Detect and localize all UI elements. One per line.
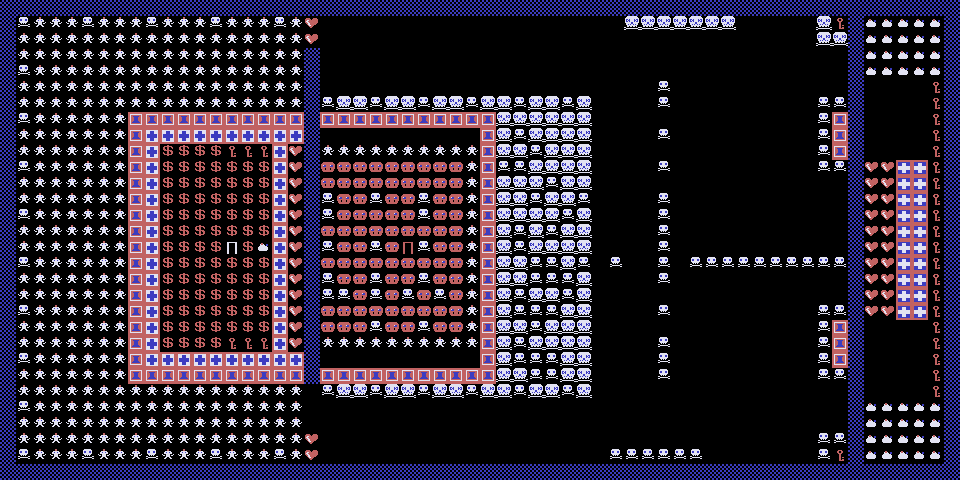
tile-capped-monster[interactable] <box>114 49 126 59</box>
tile-capped-monster[interactable] <box>66 241 78 251</box>
tile-capped-monster[interactable] <box>34 81 46 91</box>
tile-red-face-monster[interactable] <box>433 210 447 220</box>
tile-large-skull[interactable] <box>544 384 560 398</box>
tile-capped-monster[interactable] <box>466 289 478 299</box>
tile-capped-monster[interactable] <box>50 177 62 187</box>
tile-red-face-monster[interactable] <box>369 178 383 188</box>
tile-treasure-dollar[interactable] <box>211 289 221 300</box>
tile-small-skull[interactable] <box>658 241 670 251</box>
tile-capped-monster[interactable] <box>98 401 110 411</box>
tile-money-bag[interactable] <box>914 403 924 411</box>
tile-capped-monster[interactable] <box>258 49 270 59</box>
tile-small-skull[interactable] <box>834 257 846 267</box>
tile-small-skull[interactable] <box>818 129 830 139</box>
tile-heart[interactable] <box>881 210 894 220</box>
tile-large-skull[interactable] <box>560 112 576 126</box>
tile-treasure-dollar[interactable] <box>163 209 173 220</box>
tile-capped-monster[interactable] <box>114 33 126 43</box>
tile-capped-monster[interactable] <box>34 145 46 155</box>
tile-large-skull[interactable] <box>576 160 592 174</box>
tile-large-skull[interactable] <box>528 384 544 398</box>
tile-capped-monster[interactable] <box>98 289 110 299</box>
tile-large-skull[interactable] <box>528 176 544 190</box>
tile-capped-monster[interactable] <box>210 97 222 107</box>
tile-small-skull[interactable] <box>322 385 334 395</box>
tile-treasure-dollar[interactable] <box>163 177 173 188</box>
tile-red-face-monster[interactable] <box>353 194 367 204</box>
tile-red-face-monster[interactable] <box>321 162 335 172</box>
tile-capped-monster[interactable] <box>274 401 286 411</box>
tile-key[interactable] <box>933 242 940 253</box>
tile-small-skull[interactable] <box>674 449 686 459</box>
tile-heart[interactable] <box>881 258 894 268</box>
tile-red-face-monster[interactable] <box>401 322 415 332</box>
tile-large-skull[interactable] <box>496 128 512 142</box>
tile-capped-monster[interactable] <box>34 337 46 347</box>
tile-capped-monster[interactable] <box>162 49 174 59</box>
tile-money-bag[interactable] <box>882 435 892 443</box>
tile-large-skull[interactable] <box>496 320 512 334</box>
tile-capped-monster[interactable] <box>146 33 158 43</box>
tile-capped-monster[interactable] <box>354 145 366 155</box>
tile-capped-monster[interactable] <box>194 385 206 395</box>
tile-red-face-monster[interactable] <box>321 306 335 316</box>
tile-capped-monster[interactable] <box>434 337 446 347</box>
tile-treasure-dollar[interactable] <box>243 257 253 268</box>
tile-large-skull[interactable] <box>560 144 576 158</box>
tile-capped-monster[interactable] <box>98 305 110 315</box>
tile-capped-monster[interactable] <box>50 353 62 363</box>
tile-capped-monster[interactable] <box>82 161 94 171</box>
tile-heart[interactable] <box>881 290 894 300</box>
tile-capped-monster[interactable] <box>82 145 94 155</box>
tile-capped-monster[interactable] <box>290 433 302 443</box>
tile-capped-monster[interactable] <box>66 337 78 347</box>
tile-small-skull[interactable] <box>18 209 30 219</box>
tile-large-skull[interactable] <box>560 176 576 190</box>
tile-small-skull[interactable] <box>818 97 830 107</box>
tile-large-skull[interactable] <box>496 336 512 350</box>
tile-red-face-monster[interactable] <box>417 226 431 236</box>
tile-capped-monster[interactable] <box>114 257 126 267</box>
tile-capped-monster[interactable] <box>66 401 78 411</box>
tile-treasure-dollar[interactable] <box>163 337 173 348</box>
tile-small-skull[interactable] <box>370 193 382 203</box>
tile-large-skull[interactable] <box>432 384 448 398</box>
tile-capped-monster[interactable] <box>66 305 78 315</box>
tile-large-skull[interactable] <box>544 288 560 302</box>
tile-small-skull[interactable] <box>466 385 478 395</box>
tile-heart[interactable] <box>289 242 302 252</box>
tile-capped-monster[interactable] <box>162 17 174 27</box>
tile-treasure-dollar[interactable] <box>211 177 221 188</box>
tile-treasure-dollar[interactable] <box>195 257 205 268</box>
tile-treasure-dollar[interactable] <box>179 225 189 236</box>
tile-red-face-monster[interactable] <box>385 162 399 172</box>
tile-small-skull[interactable] <box>418 273 430 283</box>
tile-treasure-dollar[interactable] <box>259 161 269 172</box>
tile-small-skull[interactable] <box>322 97 334 107</box>
tile-treasure-dollar[interactable] <box>163 225 173 236</box>
tile-capped-monster[interactable] <box>210 385 222 395</box>
tile-capped-monster[interactable] <box>18 433 30 443</box>
tile-capped-monster[interactable] <box>242 33 254 43</box>
tile-capped-monster[interactable] <box>18 145 30 155</box>
tile-capped-monster[interactable] <box>146 433 158 443</box>
tile-capped-monster[interactable] <box>50 113 62 123</box>
tile-red-face-monster[interactable] <box>353 178 367 188</box>
tile-red-face-monster[interactable] <box>401 258 415 268</box>
tile-small-skull[interactable] <box>418 209 430 219</box>
tile-capped-monster[interactable] <box>50 161 62 171</box>
tile-small-skull[interactable] <box>818 113 830 123</box>
tile-heart[interactable] <box>289 194 302 204</box>
tile-treasure-dollar[interactable] <box>243 193 253 204</box>
tile-small-skull[interactable] <box>514 353 526 363</box>
tile-capped-monster[interactable] <box>66 289 78 299</box>
tile-capped-monster[interactable] <box>466 225 478 235</box>
tile-large-skull[interactable] <box>512 320 528 334</box>
tile-capped-monster[interactable] <box>130 65 142 75</box>
tile-capped-monster[interactable] <box>82 353 94 363</box>
tile-capped-monster[interactable] <box>82 369 94 379</box>
tile-capped-monster[interactable] <box>338 145 350 155</box>
tile-heart[interactable] <box>289 210 302 220</box>
tile-treasure-dollar[interactable] <box>259 193 269 204</box>
tile-red-face-monster[interactable] <box>449 274 463 284</box>
tile-red-face-monster[interactable] <box>337 274 351 284</box>
tile-red-face-monster[interactable] <box>417 178 431 188</box>
tile-small-skull[interactable] <box>514 161 526 171</box>
tile-capped-monster[interactable] <box>434 145 446 155</box>
tile-capped-monster[interactable] <box>82 433 94 443</box>
tile-capped-monster[interactable] <box>274 49 286 59</box>
tile-treasure-dollar[interactable] <box>195 241 205 252</box>
tile-small-skull[interactable] <box>418 193 430 203</box>
tile-red-face-monster[interactable] <box>369 258 383 268</box>
tile-large-skull[interactable] <box>496 304 512 318</box>
tile-large-skull[interactable] <box>496 352 512 366</box>
tile-small-skull[interactable] <box>530 257 542 267</box>
tile-treasure-dollar[interactable] <box>211 209 221 220</box>
tile-red-face-monster[interactable] <box>369 162 383 172</box>
tile-red-face-monster[interactable] <box>385 242 399 252</box>
tile-treasure-dollar[interactable] <box>179 177 189 188</box>
tile-red-face-monster[interactable] <box>449 194 463 204</box>
tile-capped-monster[interactable] <box>370 145 382 155</box>
tile-heart[interactable] <box>305 450 318 460</box>
tile-treasure-dollar[interactable] <box>259 289 269 300</box>
tile-capped-monster[interactable] <box>178 17 190 27</box>
tile-capped-monster[interactable] <box>242 65 254 75</box>
tile-small-skull[interactable] <box>18 353 30 363</box>
tile-key[interactable] <box>837 450 844 461</box>
tile-capped-monster[interactable] <box>226 33 238 43</box>
tile-heart[interactable] <box>289 274 302 284</box>
tile-capped-monster[interactable] <box>34 449 46 459</box>
tile-capped-monster[interactable] <box>66 97 78 107</box>
tile-large-skull[interactable] <box>544 144 560 158</box>
tile-key[interactable] <box>933 274 940 285</box>
tile-key[interactable] <box>245 146 252 157</box>
tile-money-bag[interactable] <box>930 419 940 427</box>
tile-red-face-monster[interactable] <box>369 226 383 236</box>
tile-capped-monster[interactable] <box>178 401 190 411</box>
tile-large-skull[interactable] <box>528 112 544 126</box>
tile-capped-monster[interactable] <box>66 353 78 363</box>
tile-capped-monster[interactable] <box>66 113 78 123</box>
tile-capped-monster[interactable] <box>226 65 238 75</box>
tile-capped-monster[interactable] <box>34 113 46 123</box>
tile-capped-monster[interactable] <box>162 385 174 395</box>
tile-capped-monster[interactable] <box>98 65 110 75</box>
tile-money-bag[interactable] <box>866 67 876 75</box>
tile-money-bag[interactable] <box>258 243 268 251</box>
tile-large-skull[interactable] <box>560 304 576 318</box>
tile-key[interactable] <box>933 114 940 125</box>
tile-small-skull[interactable] <box>818 305 830 315</box>
tile-heart[interactable] <box>865 210 878 220</box>
tile-treasure-dollar[interactable] <box>227 305 237 316</box>
tile-treasure-dollar[interactable] <box>211 161 221 172</box>
tile-small-skull[interactable] <box>514 305 526 315</box>
tile-treasure-dollar[interactable] <box>163 289 173 300</box>
tile-large-skull[interactable] <box>528 336 544 350</box>
tile-capped-monster[interactable] <box>210 433 222 443</box>
tile-small-skull[interactable] <box>562 385 574 395</box>
tile-capped-monster[interactable] <box>130 97 142 107</box>
tile-capped-monster[interactable] <box>18 49 30 59</box>
tile-red-face-monster[interactable] <box>433 306 447 316</box>
tile-small-skull[interactable] <box>546 225 558 235</box>
tile-red-face-monster[interactable] <box>353 242 367 252</box>
tile-large-skull[interactable] <box>576 240 592 254</box>
tile-large-skull[interactable] <box>816 16 832 30</box>
tile-red-face-monster[interactable] <box>449 258 463 268</box>
tile-small-skull[interactable] <box>754 257 766 267</box>
tile-heart[interactable] <box>865 194 878 204</box>
tile-heart[interactable] <box>881 178 894 188</box>
tile-treasure-dollar[interactable] <box>179 161 189 172</box>
tile-large-skull[interactable] <box>448 384 464 398</box>
tile-capped-monster[interactable] <box>130 449 142 459</box>
tile-capped-monster[interactable] <box>66 257 78 267</box>
tile-capped-monster[interactable] <box>18 81 30 91</box>
tile-capped-monster[interactable] <box>114 129 126 139</box>
tile-capped-monster[interactable] <box>82 129 94 139</box>
tile-capped-monster[interactable] <box>98 385 110 395</box>
tile-capped-monster[interactable] <box>162 81 174 91</box>
tile-money-bag[interactable] <box>866 451 876 459</box>
tile-money-bag[interactable] <box>866 419 876 427</box>
tile-small-skull[interactable] <box>610 257 622 267</box>
tile-large-skull[interactable] <box>496 144 512 158</box>
tile-heart[interactable] <box>289 178 302 188</box>
tile-capped-monster[interactable] <box>18 337 30 347</box>
tile-treasure-dollar[interactable] <box>259 321 269 332</box>
tile-heart[interactable] <box>305 18 318 28</box>
tile-small-skull[interactable] <box>402 289 414 299</box>
tile-red-face-monster[interactable] <box>449 162 463 172</box>
tile-small-skull[interactable] <box>370 273 382 283</box>
tile-capped-monster[interactable] <box>242 449 254 459</box>
tile-key[interactable] <box>933 306 940 317</box>
tile-capped-monster[interactable] <box>98 209 110 219</box>
tile-capped-monster[interactable] <box>290 65 302 75</box>
tile-capped-monster[interactable] <box>18 33 30 43</box>
tile-large-skull[interactable] <box>528 160 544 174</box>
tile-capped-monster[interactable] <box>210 401 222 411</box>
tile-key[interactable] <box>261 146 268 157</box>
tile-capped-monster[interactable] <box>226 417 238 427</box>
tile-small-skull[interactable] <box>530 305 542 315</box>
tile-money-bag[interactable] <box>914 67 924 75</box>
tile-capped-monster[interactable] <box>258 81 270 91</box>
tile-capped-monster[interactable] <box>66 225 78 235</box>
tile-red-face-monster[interactable] <box>433 162 447 172</box>
tile-heart[interactable] <box>865 306 878 316</box>
tile-small-skull[interactable] <box>834 433 846 443</box>
tile-capped-monster[interactable] <box>98 433 110 443</box>
tile-capped-monster[interactable] <box>466 145 478 155</box>
tile-capped-monster[interactable] <box>50 17 62 27</box>
tile-large-skull[interactable] <box>544 160 560 174</box>
tile-key[interactable] <box>933 386 940 397</box>
tile-treasure-dollar[interactable] <box>195 273 205 284</box>
tile-small-skull[interactable] <box>418 385 430 395</box>
tile-capped-monster[interactable] <box>466 337 478 347</box>
tile-large-skull[interactable] <box>496 224 512 238</box>
tile-capped-monster[interactable] <box>338 337 350 347</box>
tile-red-face-monster[interactable] <box>385 290 399 300</box>
tile-capped-monster[interactable] <box>34 209 46 219</box>
tile-capped-monster[interactable] <box>178 433 190 443</box>
tile-capped-monster[interactable] <box>82 97 94 107</box>
tile-small-skull[interactable] <box>82 17 94 27</box>
tile-capped-monster[interactable] <box>178 65 190 75</box>
tile-large-skull[interactable] <box>496 384 512 398</box>
tile-large-skull[interactable] <box>528 240 544 254</box>
tile-key[interactable] <box>933 338 940 349</box>
tile-heart[interactable] <box>865 258 878 268</box>
tile-capped-monster[interactable] <box>98 193 110 203</box>
tile-large-skull[interactable] <box>576 176 592 190</box>
tile-capped-monster[interactable] <box>258 17 270 27</box>
tile-capped-monster[interactable] <box>114 17 126 27</box>
tile-small-skull[interactable] <box>18 113 30 123</box>
tile-capped-monster[interactable] <box>98 321 110 331</box>
tile-capped-monster[interactable] <box>402 145 414 155</box>
tile-heart[interactable] <box>881 194 894 204</box>
tile-capped-monster[interactable] <box>18 97 30 107</box>
tile-money-bag[interactable] <box>866 403 876 411</box>
tile-small-skull[interactable] <box>210 17 222 27</box>
tile-capped-monster[interactable] <box>50 33 62 43</box>
tile-treasure-dollar[interactable] <box>179 321 189 332</box>
tile-small-skull[interactable] <box>370 241 382 251</box>
tile-capped-monster[interactable] <box>114 193 126 203</box>
tile-capped-monster[interactable] <box>18 385 30 395</box>
tile-small-skull[interactable] <box>562 209 574 219</box>
tile-red-face-monster[interactable] <box>337 226 351 236</box>
tile-money-bag[interactable] <box>882 403 892 411</box>
tile-small-skull[interactable] <box>658 81 670 91</box>
tile-heart[interactable] <box>865 178 878 188</box>
tile-small-skull[interactable] <box>818 433 830 443</box>
tile-capped-monster[interactable] <box>98 417 110 427</box>
tile-large-skull[interactable] <box>448 96 464 110</box>
tile-red-face-monster[interactable] <box>417 258 431 268</box>
tile-red-face-monster[interactable] <box>321 226 335 236</box>
tile-large-skull[interactable] <box>336 384 352 398</box>
tile-capped-monster[interactable] <box>258 417 270 427</box>
tile-capped-monster[interactable] <box>98 97 110 107</box>
tile-large-skull[interactable] <box>544 96 560 110</box>
tile-large-skull[interactable] <box>496 272 512 286</box>
tile-capped-monster[interactable] <box>146 81 158 91</box>
tile-large-skull[interactable] <box>832 32 848 46</box>
tile-capped-monster[interactable] <box>290 385 302 395</box>
tile-heart[interactable] <box>289 290 302 300</box>
tile-money-bag[interactable] <box>914 451 924 459</box>
tile-key[interactable] <box>229 338 236 349</box>
tile-large-skull[interactable] <box>496 288 512 302</box>
tile-money-bag[interactable] <box>898 35 908 43</box>
tile-capped-monster[interactable] <box>18 241 30 251</box>
tile-capped-monster[interactable] <box>210 65 222 75</box>
tile-money-bag[interactable] <box>866 35 876 43</box>
tile-large-skull[interactable] <box>576 272 592 286</box>
tile-treasure-dollar[interactable] <box>179 241 189 252</box>
tile-capped-monster[interactable] <box>114 417 126 427</box>
tile-capped-monster[interactable] <box>194 401 206 411</box>
tile-treasure-dollar[interactable] <box>163 145 173 156</box>
tile-red-face-monster[interactable] <box>385 274 399 284</box>
tile-large-skull[interactable] <box>496 240 512 254</box>
tile-capped-monster[interactable] <box>226 81 238 91</box>
tile-capped-monster[interactable] <box>274 81 286 91</box>
tile-capped-monster[interactable] <box>34 225 46 235</box>
tile-treasure-dollar[interactable] <box>243 321 253 332</box>
tile-capped-monster[interactable] <box>322 337 334 347</box>
tile-red-face-monster[interactable] <box>449 242 463 252</box>
tile-capped-monster[interactable] <box>50 337 62 347</box>
tile-capped-monster[interactable] <box>114 65 126 75</box>
tile-red-face-monster[interactable] <box>433 178 447 188</box>
tile-capped-monster[interactable] <box>50 273 62 283</box>
tile-capped-monster[interactable] <box>18 177 30 187</box>
tile-red-face-monster[interactable] <box>385 306 399 316</box>
tile-small-skull[interactable] <box>834 97 846 107</box>
tile-treasure-dollar[interactable] <box>179 337 189 348</box>
tile-treasure-dollar[interactable] <box>195 177 205 188</box>
tile-capped-monster[interactable] <box>34 193 46 203</box>
tile-capped-monster[interactable] <box>18 273 30 283</box>
tile-capped-monster[interactable] <box>114 369 126 379</box>
tile-treasure-dollar[interactable] <box>227 273 237 284</box>
tile-red-face-monster[interactable] <box>353 210 367 220</box>
tile-small-skull[interactable] <box>802 257 814 267</box>
tile-capped-monster[interactable] <box>290 97 302 107</box>
tile-money-bag[interactable] <box>914 419 924 427</box>
tile-red-face-monster[interactable] <box>401 226 415 236</box>
tile-small-skull[interactable] <box>562 273 574 283</box>
tile-capped-monster[interactable] <box>114 241 126 251</box>
tile-capped-monster[interactable] <box>146 65 158 75</box>
tile-treasure-dollar[interactable] <box>179 289 189 300</box>
tile-small-skull[interactable] <box>818 321 830 331</box>
tile-key[interactable] <box>933 370 940 381</box>
